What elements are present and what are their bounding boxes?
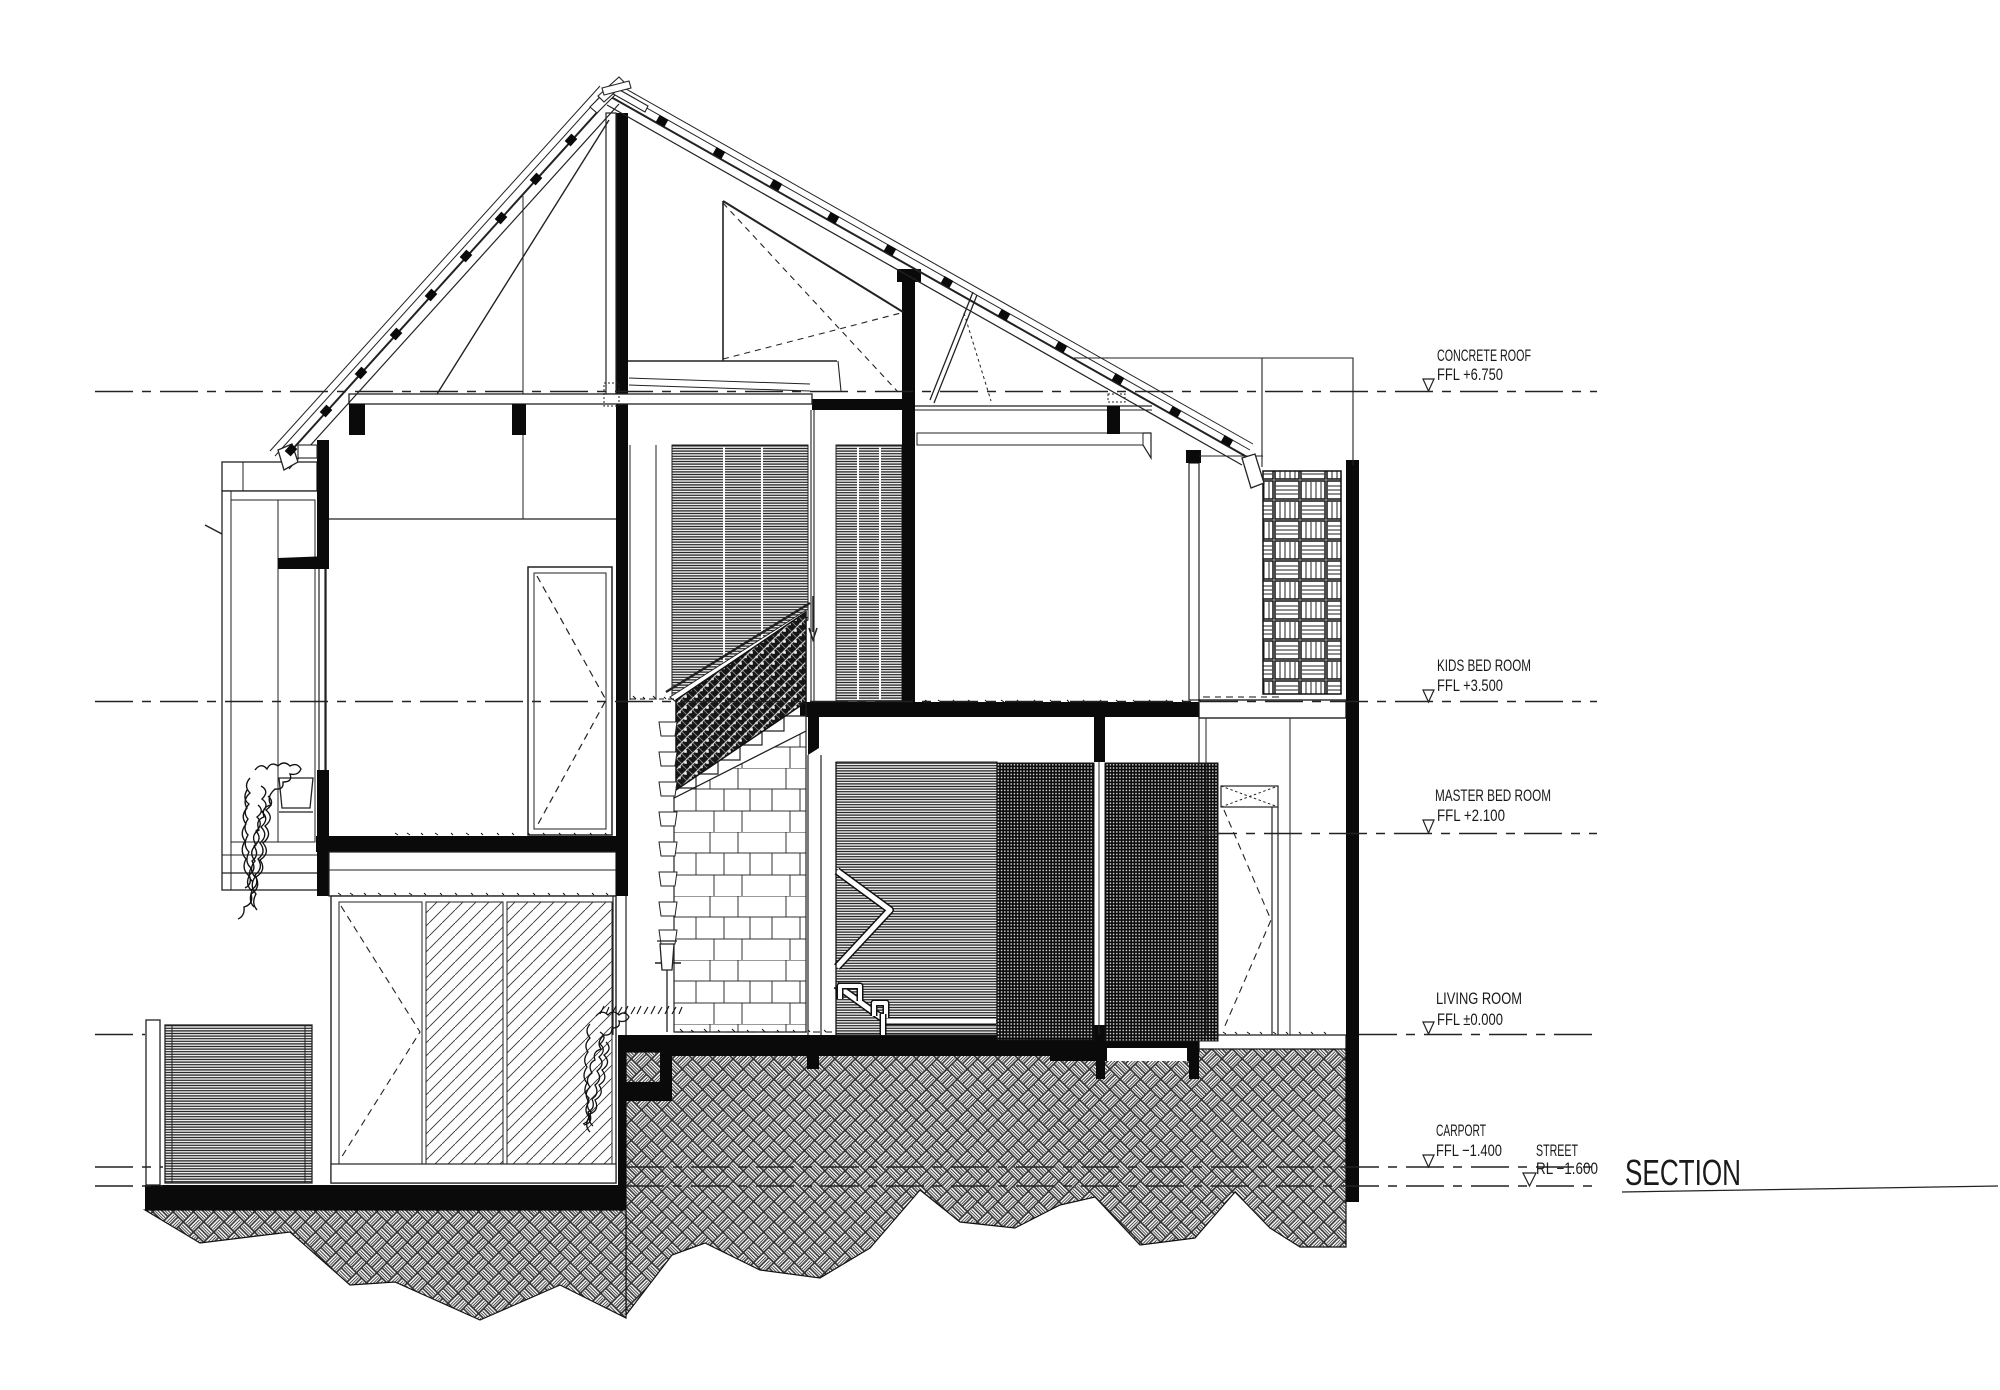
svg-text:CONCRETE ROOF: CONCRETE ROOF xyxy=(1437,346,1531,365)
svg-text:FFL +2.100: FFL +2.100 xyxy=(1437,806,1505,825)
svg-text:FFL −1.400: FFL −1.400 xyxy=(1436,1141,1502,1160)
svg-text:STREET: STREET xyxy=(1536,1141,1578,1160)
svg-text:KIDS BED ROOM: KIDS BED ROOM xyxy=(1437,656,1531,675)
svg-text:RL −1.600: RL −1.600 xyxy=(1536,1159,1598,1178)
svg-text:FFL ±0.000: FFL ±0.000 xyxy=(1437,1010,1503,1029)
svg-text:FFL +3.500: FFL +3.500 xyxy=(1437,676,1503,695)
svg-text:MASTER BED ROOM: MASTER BED ROOM xyxy=(1435,786,1551,805)
svg-text:SECTION: SECTION xyxy=(1625,1152,1741,1193)
svg-text:FFL +6.750: FFL +6.750 xyxy=(1437,365,1503,384)
svg-text:LIVING ROOM: LIVING ROOM xyxy=(1436,989,1522,1008)
svg-text:CARPORT: CARPORT xyxy=(1436,1121,1486,1140)
